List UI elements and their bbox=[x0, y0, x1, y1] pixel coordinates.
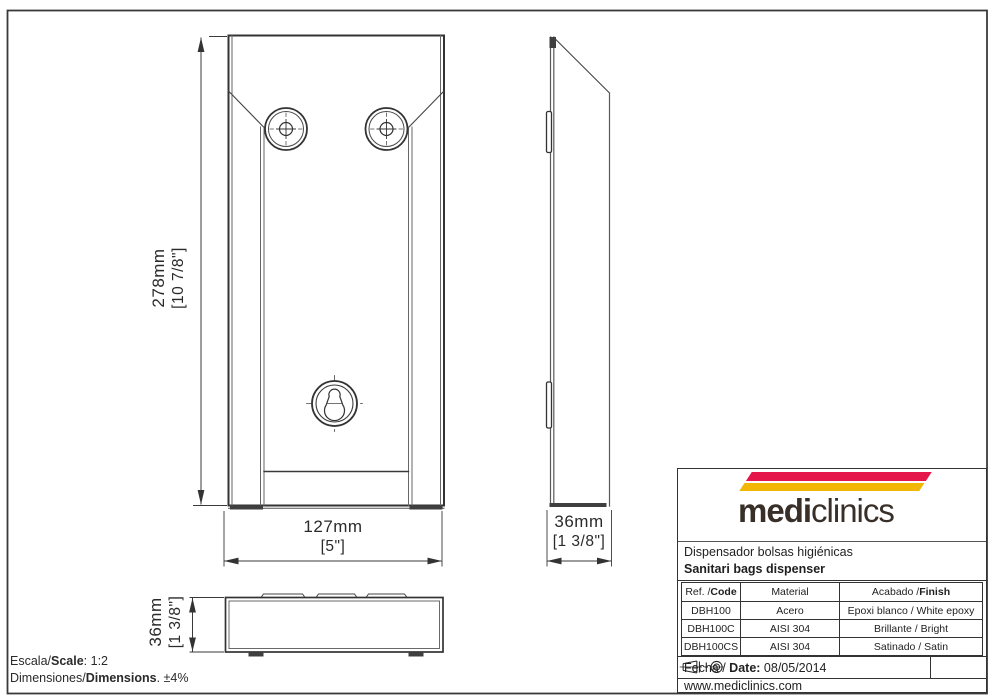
first-angle-projection-icon bbox=[930, 657, 986, 678]
dim-height-mm: 278mm bbox=[149, 213, 169, 343]
table-cell-code: DBH100CS bbox=[682, 637, 740, 655]
side-base bbox=[550, 503, 607, 507]
dim-height-in: [10 7/8"] bbox=[169, 213, 189, 343]
front-foot-left bbox=[230, 506, 263, 510]
product-name-es: Dispensador bolsas higiénicas bbox=[684, 544, 986, 561]
table-cell-material: Acero bbox=[740, 601, 839, 619]
table-cell-finish: Epoxi blanco / White epoxy bbox=[839, 601, 982, 619]
dim-depth-side-label: 36mm [1 3/8"] bbox=[519, 512, 639, 552]
logo-stripe-yellow bbox=[740, 483, 925, 491]
mount-hole-right bbox=[366, 108, 408, 150]
dim-depth-side-mm: 36mm bbox=[519, 512, 639, 532]
scale-line: Escala/Scale: 1:2 bbox=[10, 653, 188, 670]
table-cell-finish: Brillante / Bright bbox=[839, 619, 982, 637]
col-header-material: Material bbox=[740, 583, 839, 601]
product-name-en: Sanitari bags dispenser bbox=[684, 561, 986, 578]
dim-depth-side-in: [1 3/8"] bbox=[519, 532, 639, 552]
dim-width-label: 127mm [5"] bbox=[273, 517, 393, 557]
dim-height-label: 278mm [10 7/8"] bbox=[149, 213, 189, 343]
logo: mediclinics bbox=[678, 469, 986, 542]
side-bracket-bottom bbox=[547, 382, 552, 428]
logo-wordmark: mediclinics bbox=[738, 493, 894, 529]
table-cell-material: AISI 304 bbox=[740, 637, 839, 655]
side-bracket-top bbox=[547, 112, 552, 153]
bottom-foot-right bbox=[409, 652, 424, 657]
website-url: www.mediclinics.com bbox=[684, 679, 802, 693]
front-view bbox=[229, 36, 445, 510]
table-cell-code: DBH100C bbox=[682, 619, 740, 637]
table-cell-code: DBH100 bbox=[682, 601, 740, 619]
drawing-sheet: 278mm [10 7/8"] 127mm [5"] 36mm [1 3/8"]… bbox=[0, 0, 995, 700]
bottom-view bbox=[226, 594, 444, 657]
product-names: Dispensador bolsas higiénicas Sanitari b… bbox=[678, 541, 986, 581]
date-row: Fecha / Date: 08/05/2014 bbox=[678, 656, 986, 678]
bottom-foot-left bbox=[249, 652, 264, 657]
front-foot-right bbox=[410, 506, 443, 510]
logo-stripe-red bbox=[746, 472, 932, 481]
tolerance-line: Dimensiones/Dimensions. ±4% bbox=[10, 670, 188, 687]
title-block: mediclinics Dispensador bolsas higiénica… bbox=[677, 468, 987, 693]
side-view bbox=[547, 37, 610, 507]
scale-notes: Escala/Scale: 1:2 Dimensiones/Dimensions… bbox=[10, 653, 188, 687]
dim-depth-bottom-lines bbox=[189, 598, 224, 653]
col-header-code: Ref. / Code bbox=[682, 583, 740, 601]
website-row: www.mediclinics.com bbox=[678, 678, 986, 692]
dim-height-lines bbox=[193, 37, 227, 506]
table-cell-finish: Satinado / Satin bbox=[839, 637, 982, 655]
mount-hole-left bbox=[265, 108, 307, 150]
dim-width-mm: 127mm bbox=[273, 517, 393, 537]
dim-width-in: [5"] bbox=[273, 537, 393, 557]
table-cell-material: AISI 304 bbox=[740, 619, 839, 637]
spec-table: Ref. / Code Material Acabado / Finish DB… bbox=[681, 582, 983, 656]
col-header-finish: Acabado / Finish bbox=[839, 583, 982, 601]
